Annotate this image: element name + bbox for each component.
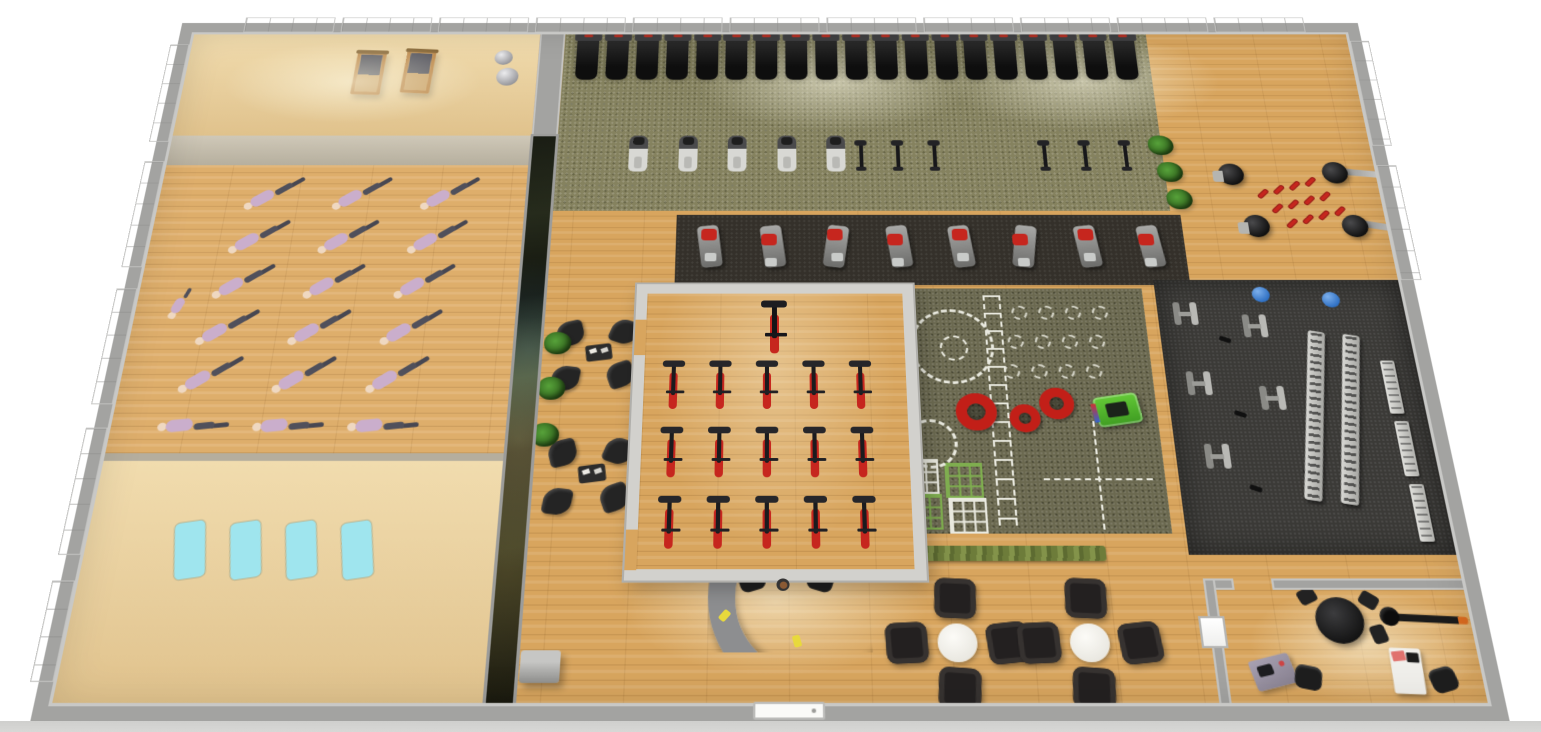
strength-machine[interactable]	[879, 221, 918, 271]
floor-divider-strip	[100, 453, 504, 461]
bike-row-b	[1037, 140, 1134, 173]
spin-bike[interactable]	[804, 496, 828, 536]
elliptical-trainer[interactable]	[826, 136, 846, 172]
office-window	[1198, 616, 1229, 648]
dumbbell[interactable]	[1219, 336, 1232, 344]
turf-circle-small	[1031, 364, 1048, 378]
strength-machine[interactable]	[754, 221, 791, 271]
gym-3d-scene	[30, 23, 1509, 721]
armchair[interactable]	[934, 577, 976, 619]
treadmill[interactable]	[575, 37, 600, 79]
window-top	[729, 17, 819, 32]
red-dumbbell[interactable]	[1334, 206, 1347, 217]
round-table[interactable]	[937, 624, 979, 663]
side-table[interactable]	[585, 343, 613, 362]
spin-bike-grid	[647, 355, 903, 560]
training-tire[interactable]	[1009, 404, 1042, 432]
treadmill[interactable]	[993, 37, 1018, 79]
exercise-bike[interactable]	[927, 140, 941, 173]
turf-circle-small	[1038, 306, 1055, 320]
hedge-planter[interactable]	[906, 546, 1107, 561]
red-dumbbell[interactable]	[1286, 218, 1299, 230]
spin-bike[interactable]	[755, 427, 778, 465]
turf-circle-small	[1085, 364, 1103, 378]
reception-staff[interactable]	[771, 578, 793, 595]
armchair[interactable]	[1016, 621, 1063, 664]
strength-machine[interactable]	[1067, 221, 1109, 271]
spin-bike[interactable]	[662, 361, 685, 397]
strength-machine[interactable]	[691, 221, 729, 271]
class-participant[interactable]	[361, 351, 426, 399]
treadmill[interactable]	[963, 37, 988, 79]
spin-studio	[624, 284, 927, 580]
class-participant[interactable]	[191, 305, 256, 351]
weight-bench[interactable]	[1239, 314, 1269, 340]
pilates-corner-floor	[170, 32, 540, 135]
armchair[interactable]	[938, 666, 981, 711]
agility-grid-marking	[944, 463, 984, 498]
exercise-ball[interactable]	[494, 50, 514, 65]
elliptical-trainer[interactable]	[628, 136, 648, 172]
class-participant[interactable]	[174, 351, 240, 399]
stretch-mat[interactable]	[230, 520, 261, 581]
strength-machine[interactable]	[942, 221, 982, 271]
seating-cluster	[1013, 578, 1169, 709]
window-top	[632, 17, 722, 32]
spin-bike[interactable]	[802, 361, 825, 397]
dumbbell[interactable]	[1234, 410, 1247, 418]
pilates-tower[interactable]	[400, 50, 437, 94]
stability-ball[interactable]	[1251, 287, 1271, 302]
treadmill[interactable]	[695, 37, 718, 79]
functional-turf	[883, 288, 1172, 533]
turf-circle-small	[1034, 335, 1051, 349]
weight-bench[interactable]	[1257, 386, 1288, 414]
window-top	[243, 17, 335, 32]
barbell-wall-rack[interactable]	[1394, 421, 1420, 476]
treadmill[interactable]	[605, 37, 629, 79]
class-participant[interactable]	[208, 259, 272, 304]
class-participant[interactable]	[299, 259, 362, 304]
entrance-door[interactable]	[753, 702, 825, 720]
kiosk-box[interactable]	[519, 650, 561, 683]
office-wall-top-b	[1271, 578, 1467, 589]
treadmill[interactable]	[904, 37, 928, 79]
turf-circle-small	[1061, 335, 1078, 349]
turf-circle-small	[1058, 364, 1076, 378]
class-participant[interactable]	[328, 173, 389, 215]
dumbbell-rack[interactable]	[1304, 330, 1325, 502]
treadmill[interactable]	[665, 37, 688, 79]
exercise-ball[interactable]	[495, 68, 519, 86]
lounge-chair[interactable]	[540, 486, 574, 516]
treadmill-row	[575, 37, 1140, 84]
strength-machine-row	[690, 221, 1173, 276]
red-dumbbell[interactable]	[1302, 214, 1315, 225]
treadmill[interactable]	[785, 37, 807, 79]
spin-bike[interactable]	[850, 427, 874, 465]
training-tire[interactable]	[1038, 388, 1076, 419]
class-participant[interactable]	[267, 351, 333, 399]
class-participant[interactable]	[375, 305, 439, 351]
exercise-bike[interactable]	[1077, 140, 1093, 173]
treadmill[interactable]	[934, 37, 959, 79]
stretch-mat[interactable]	[174, 520, 205, 581]
weight-bench[interactable]	[1183, 371, 1213, 398]
red-dumbbell[interactable]	[1271, 203, 1284, 214]
side-table[interactable]	[578, 463, 607, 484]
barbell-wall-rack[interactable]	[1409, 484, 1436, 542]
exercise-bike[interactable]	[854, 140, 867, 173]
treadmill[interactable]	[1023, 37, 1049, 79]
turf-circle-small	[1003, 364, 1020, 378]
weight-bench[interactable]	[1201, 444, 1232, 473]
spin-bike[interactable]	[659, 427, 683, 465]
window-top	[826, 17, 916, 32]
turf-circle-small	[1064, 306, 1081, 320]
stability-ball[interactable]	[1321, 292, 1342, 308]
exterior-apron	[0, 721, 1541, 732]
armchair[interactable]	[1064, 577, 1107, 619]
treadmill[interactable]	[815, 37, 838, 79]
class-participant[interactable]	[252, 413, 317, 438]
barbell-wall-rack[interactable]	[1380, 361, 1405, 414]
window-top	[923, 17, 1014, 32]
mat-area-floor	[48, 461, 504, 706]
bike-row-a	[854, 140, 941, 173]
class-participant[interactable]	[416, 173, 477, 215]
instructor-spin-bike[interactable]	[761, 301, 787, 341]
studio-door-opening-bottom[interactable]	[624, 530, 638, 571]
red-dumbbell[interactable]	[1303, 195, 1316, 206]
turf-circle-small	[1011, 306, 1028, 320]
dumbbell[interactable]	[1249, 484, 1263, 493]
mat-row	[170, 522, 376, 579]
spin-bike[interactable]	[707, 427, 730, 465]
prowler-sled[interactable]	[1092, 392, 1144, 428]
render-viewport	[0, 0, 1541, 732]
turf-circle-small	[1088, 335, 1106, 349]
studio-door-opening-top[interactable]	[634, 320, 647, 355]
class-participant[interactable]	[156, 413, 222, 438]
treadmill[interactable]	[1082, 37, 1109, 79]
spin-bike[interactable]	[706, 496, 730, 536]
exercise-bike[interactable]	[1037, 140, 1052, 173]
strength-machine[interactable]	[1129, 221, 1172, 271]
exercise-bike[interactable]	[891, 140, 905, 173]
class-participant[interactable]	[283, 305, 348, 351]
stretch-mat[interactable]	[341, 520, 373, 581]
dumbbell-rack[interactable]	[1341, 334, 1360, 506]
turf-circle-small	[1007, 335, 1024, 349]
studio-back-wall-band	[164, 136, 532, 166]
pilates-tower[interactable]	[350, 51, 387, 95]
turf-circle-small	[1091, 306, 1108, 320]
turf-line-v	[1092, 421, 1105, 530]
window-top	[438, 17, 529, 32]
treadmill[interactable]	[725, 37, 747, 79]
red-dumbbell[interactable]	[1287, 199, 1300, 210]
elliptical-trainer[interactable]	[678, 136, 698, 172]
strength-machine[interactable]	[1004, 221, 1045, 271]
window-top	[535, 17, 626, 32]
weight-bench[interactable]	[1170, 302, 1199, 328]
armchair[interactable]	[1073, 666, 1117, 711]
class-participant[interactable]	[347, 413, 412, 438]
treadmill[interactable]	[756, 37, 778, 79]
class-instructor[interactable]	[163, 284, 197, 321]
spin-bike[interactable]	[657, 496, 682, 536]
agility-grid-marking	[948, 498, 988, 534]
elliptical-trainer[interactable]	[727, 136, 746, 172]
red-dumbbell[interactable]	[1319, 191, 1332, 202]
class-participant[interactable]	[314, 215, 376, 259]
class-participant[interactable]	[224, 215, 287, 259]
seating-cluster	[884, 578, 1035, 709]
spin-bike[interactable]	[709, 361, 732, 397]
class-participant[interactable]	[389, 259, 452, 304]
spin-bike[interactable]	[755, 496, 778, 536]
red-dumbbell[interactable]	[1318, 210, 1331, 221]
elliptical-trainer[interactable]	[777, 136, 796, 172]
stretch-mat[interactable]	[286, 520, 318, 581]
class-participant[interactable]	[240, 173, 302, 215]
strength-machine[interactable]	[817, 221, 855, 271]
group-fitness-floor	[102, 165, 529, 453]
window-top	[1213, 17, 1305, 32]
round-table[interactable]	[1068, 624, 1111, 663]
spin-bike[interactable]	[852, 496, 877, 536]
elliptical-row	[628, 136, 846, 177]
spin-bike[interactable]	[849, 361, 872, 397]
armchair[interactable]	[884, 621, 930, 664]
window-top	[341, 17, 433, 32]
class-participant[interactable]	[403, 215, 465, 259]
armchair[interactable]	[1116, 620, 1166, 665]
treadmill[interactable]	[635, 37, 659, 79]
treadmill[interactable]	[1052, 37, 1078, 79]
spin-bike[interactable]	[756, 361, 778, 397]
treadmill[interactable]	[845, 37, 868, 79]
window-top	[1020, 17, 1111, 32]
spin-bike[interactable]	[803, 427, 826, 465]
treadmill[interactable]	[874, 37, 898, 79]
window-top	[1117, 17, 1209, 32]
